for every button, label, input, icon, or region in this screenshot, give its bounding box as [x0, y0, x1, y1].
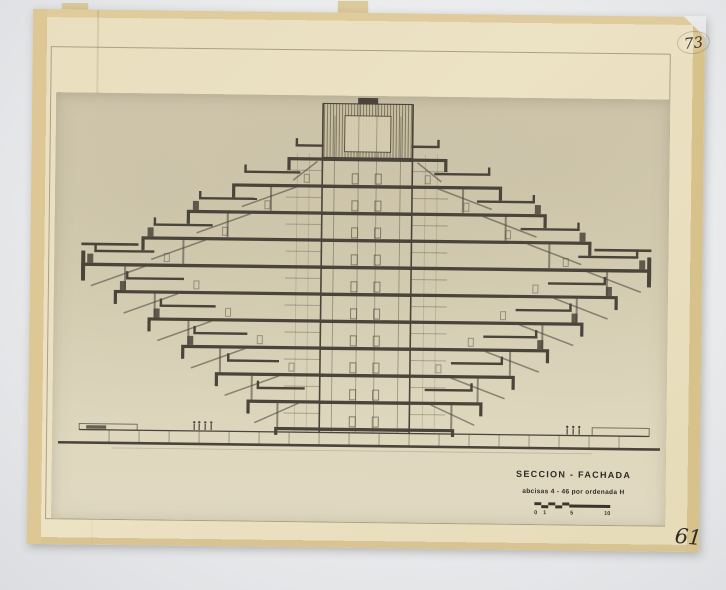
scale-bar: 0 1 5 10	[534, 502, 612, 519]
handwritten-sheet-number-top: 73	[676, 29, 711, 55]
left-wing	[79, 136, 327, 436]
drawing-title: SECCION - FACHADA	[488, 469, 660, 481]
handwritten-sheet-number-bottom: 61	[674, 524, 703, 551]
photo-background: { "annotations": { "top_right_number": "…	[0, 0, 726, 590]
print-area: SECCION - FACHADA abcisas 4 - 46 por ord…	[51, 92, 670, 525]
building-core	[319, 97, 413, 433]
scale-label-1: 1	[543, 510, 546, 516]
section-drawing	[51, 92, 670, 525]
ground-podium	[58, 421, 660, 454]
drawing-sheet: SECCION - FACHADA abcisas 4 - 46 por ord…	[27, 9, 705, 552]
drawing-subtitle: abcisas 4 - 46 por ordenada H	[487, 487, 659, 496]
title-block: SECCION - FACHADA abcisas 4 - 46 por ord…	[487, 469, 660, 520]
right-wing	[405, 140, 653, 440]
scale-label-0: 0	[534, 510, 537, 516]
scale-figures	[193, 421, 580, 435]
scale-bar-labels: 0 1 5 10	[534, 510, 612, 519]
scale-label-10: 10	[604, 511, 610, 517]
scale-label-5: 5	[570, 511, 573, 517]
